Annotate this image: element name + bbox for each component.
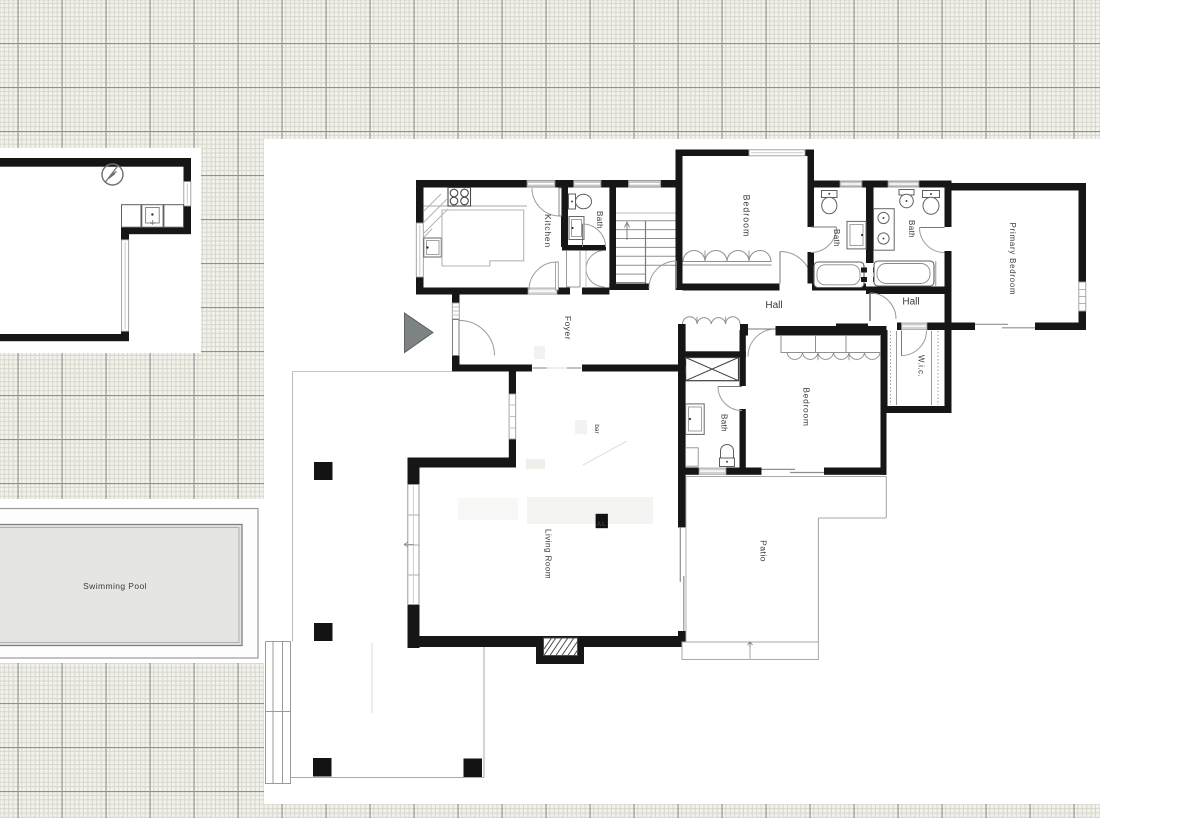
- svg-text:bar: bar: [593, 424, 600, 434]
- svg-text:Hall: Hall: [902, 297, 919, 308]
- svg-text:Bath: Bath: [832, 229, 841, 247]
- svg-text:Living Room: Living Room: [544, 529, 553, 579]
- svg-text:Kitchen: Kitchen: [543, 214, 553, 248]
- svg-text:W.i.c.: W.i.c.: [917, 355, 926, 377]
- svg-text:Primary Bedroom: Primary Bedroom: [1008, 223, 1017, 296]
- svg-text:Bath: Bath: [595, 211, 604, 229]
- svg-text:Bedroom: Bedroom: [742, 195, 752, 238]
- svg-text:Swimming Pool: Swimming Pool: [83, 581, 147, 591]
- svg-text:Bath: Bath: [720, 414, 729, 432]
- svg-text:Bedroom: Bedroom: [802, 387, 812, 426]
- svg-text:Bath: Bath: [907, 220, 916, 238]
- svg-text:Hall: Hall: [765, 300, 782, 311]
- svg-text:Foyer: Foyer: [563, 316, 573, 340]
- svg-text:Patio: Patio: [759, 540, 769, 562]
- svg-text:AL: AL: [597, 522, 607, 528]
